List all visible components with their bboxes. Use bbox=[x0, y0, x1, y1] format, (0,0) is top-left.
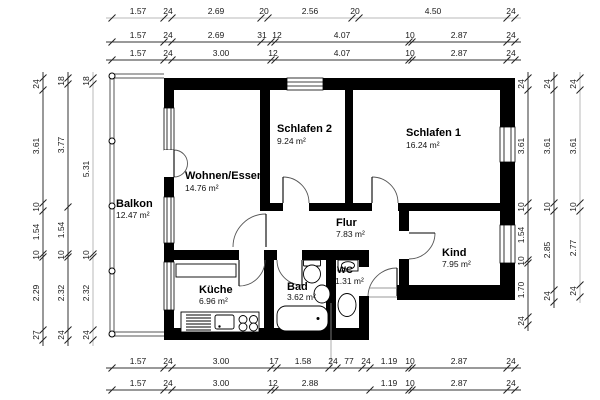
room-area-bad: 3.62 m² bbox=[287, 293, 316, 302]
dim-label: 24 bbox=[506, 31, 515, 40]
dim-label: 3.61 bbox=[569, 138, 578, 155]
window-top-schlafen2 bbox=[287, 78, 323, 90]
dim-label: 24 bbox=[163, 357, 172, 366]
dim-label: 2.87 bbox=[451, 49, 468, 58]
window-left-kueche bbox=[164, 262, 174, 310]
dim-label: 17 bbox=[269, 357, 278, 366]
dim-label: 2.87 bbox=[451, 379, 468, 388]
dim-label: 1.70 bbox=[517, 282, 526, 299]
dim-label: 27 bbox=[32, 330, 41, 339]
dim-label: 24 bbox=[328, 357, 337, 366]
dim-label: 1.58 bbox=[295, 357, 312, 366]
dim-label: 1.57 bbox=[130, 379, 147, 388]
dim-label: 20 bbox=[350, 7, 359, 16]
dim-label: 2.56 bbox=[302, 7, 319, 16]
dim-label: 77 bbox=[344, 357, 353, 366]
dim-label: 24 bbox=[543, 291, 552, 300]
dim-label: 31 bbox=[257, 31, 266, 40]
dim-label: 24 bbox=[506, 357, 515, 366]
dim-label: 5.31 bbox=[82, 161, 91, 178]
room-label-kueche: Küche bbox=[199, 285, 233, 296]
dim-label: 2.29 bbox=[32, 285, 41, 302]
dim-label: 24 bbox=[361, 357, 370, 366]
dim-label: 1.54 bbox=[32, 224, 41, 241]
dim-label: 24 bbox=[517, 79, 526, 88]
dim-label: 18 bbox=[57, 76, 66, 85]
dim-label: 24 bbox=[506, 379, 515, 388]
dim-label: 24 bbox=[163, 7, 172, 16]
door-arc-kueche bbox=[239, 260, 265, 286]
room-label-kind: Kind bbox=[442, 248, 466, 259]
room-area-flur: 7.83 m² bbox=[336, 230, 365, 239]
dim-label: 10 bbox=[82, 250, 91, 259]
room-label-schlafen1: Schlafen 1 bbox=[406, 128, 461, 139]
dim-label: 1.57 bbox=[130, 31, 147, 40]
dim-label: 10 bbox=[405, 49, 414, 58]
door-arc-schlafen2 bbox=[283, 177, 309, 203]
dim-label: 24 bbox=[57, 330, 66, 339]
dim-label: 2.87 bbox=[451, 31, 468, 40]
dim-label: 1.54 bbox=[517, 227, 526, 244]
room-label-wc: WC bbox=[337, 266, 353, 276]
dim-label: 18 bbox=[82, 76, 91, 85]
dim-label: 24 bbox=[82, 330, 91, 339]
dim-label: 1.57 bbox=[130, 49, 147, 58]
window-left-wohnen-1 bbox=[164, 108, 174, 150]
dim-label: 10 bbox=[543, 202, 552, 211]
toilet-bad-icon bbox=[304, 260, 321, 283]
dim-label: 2.32 bbox=[82, 285, 91, 302]
dim-label: 10 bbox=[405, 31, 414, 40]
room-label-schlafen2: Schlafen 2 bbox=[277, 124, 332, 135]
dim-label: 3.00 bbox=[213, 357, 230, 366]
dim-label: 2.77 bbox=[569, 240, 578, 257]
dim-label: 24 bbox=[506, 49, 515, 58]
bathtub-icon bbox=[277, 306, 328, 331]
room-area-balkon: 12.47 m² bbox=[116, 211, 150, 220]
window-right-kind bbox=[500, 225, 515, 263]
dim-label: 1.57 bbox=[130, 357, 147, 366]
dim-label: 3.61 bbox=[543, 138, 552, 155]
dim-label: 10 bbox=[405, 379, 414, 388]
dim-label: 2.85 bbox=[543, 242, 552, 259]
dim-label: 10 bbox=[405, 357, 414, 366]
room-area-wc: 1.31 m² bbox=[335, 277, 364, 286]
room-area-kind: 7.95 m² bbox=[442, 260, 471, 269]
dim-label: 2.87 bbox=[451, 357, 468, 366]
room-area-wohnen: 14.76 m² bbox=[185, 184, 219, 193]
dim-label: 2.88 bbox=[302, 379, 319, 388]
dim-label: 3.00 bbox=[213, 49, 230, 58]
dim-label: 24 bbox=[506, 7, 515, 16]
dim-label: 24 bbox=[163, 31, 172, 40]
dim-label: 10 bbox=[57, 250, 66, 259]
dim-label: 12 bbox=[268, 379, 277, 388]
floor-plan-canvas: Balkon 12.47 m² Wohnen/Essen 14.76 m² Sc… bbox=[0, 0, 600, 400]
dim-label: 3.00 bbox=[213, 379, 230, 388]
dim-label: 1.19 bbox=[381, 357, 398, 366]
door-arc-schlafen1 bbox=[372, 177, 398, 203]
room-label-balkon: Balkon bbox=[116, 199, 153, 210]
dim-label: 2.32 bbox=[57, 285, 66, 302]
window-left-wohnen-2 bbox=[164, 197, 174, 243]
toilet-wc-icon bbox=[338, 294, 356, 317]
dim-label: 24 bbox=[517, 316, 526, 325]
window-right-schlafen1 bbox=[500, 127, 515, 162]
dim-label: 1.54 bbox=[57, 222, 66, 239]
dim-label: 24 bbox=[163, 379, 172, 388]
dim-label: 3.61 bbox=[32, 138, 41, 155]
dim-label: 10 bbox=[517, 202, 526, 211]
dim-label: 10 bbox=[517, 256, 526, 265]
dim-label: 4.50 bbox=[425, 7, 442, 16]
dim-label: 2.69 bbox=[208, 7, 225, 16]
dim-label: 10 bbox=[569, 202, 578, 211]
dim-label: 2.69 bbox=[208, 31, 225, 40]
room-area-schlafen1: 16.24 m² bbox=[406, 141, 440, 150]
dim-label: 3.77 bbox=[57, 137, 66, 154]
dim-label: 24 bbox=[163, 49, 172, 58]
dim-label: 10 bbox=[32, 250, 41, 259]
room-label-flur: Flur bbox=[336, 218, 357, 229]
dim-label: 24 bbox=[569, 286, 578, 295]
kitchen-counter-icon bbox=[176, 264, 236, 277]
dim-label: 12 bbox=[268, 49, 277, 58]
dim-label: 3.61 bbox=[517, 138, 526, 155]
room-label-wohnen: Wohnen/Essen bbox=[185, 171, 264, 182]
dim-label: 4.07 bbox=[334, 31, 351, 40]
kitchen-sink-unit-icon bbox=[181, 312, 259, 332]
room-area-schlafen2: 9.24 m² bbox=[277, 137, 306, 146]
dim-label: 24 bbox=[32, 79, 41, 88]
dim-label: 24 bbox=[543, 79, 552, 88]
dim-label: 4.07 bbox=[334, 49, 351, 58]
room-area-kueche: 6.96 m² bbox=[199, 297, 228, 306]
door-arc-kind bbox=[409, 233, 435, 259]
dim-label: 20 bbox=[259, 7, 268, 16]
dim-label: 12 bbox=[272, 31, 281, 40]
washbasin-bad-icon bbox=[314, 285, 330, 303]
dim-label: 1.19 bbox=[381, 379, 398, 388]
dim-label: 1.57 bbox=[130, 7, 147, 16]
dim-label: 10 bbox=[32, 202, 41, 211]
dim-label: 24 bbox=[569, 79, 578, 88]
floor-plan-drawing bbox=[0, 0, 600, 400]
